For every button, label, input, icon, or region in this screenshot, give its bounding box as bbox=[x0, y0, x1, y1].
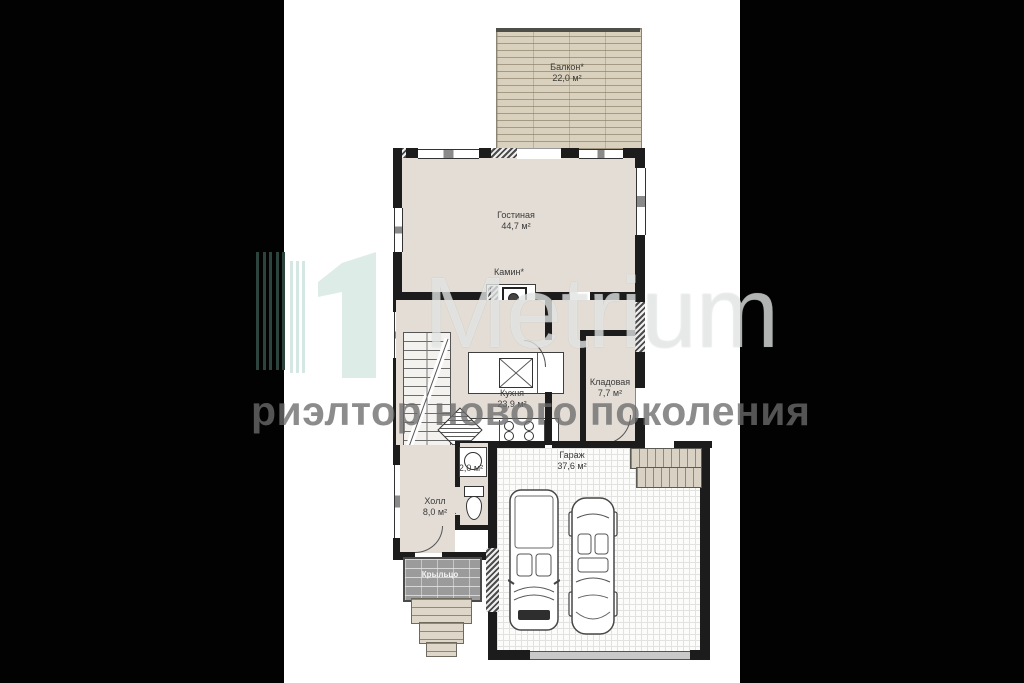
car-top-view bbox=[568, 496, 618, 636]
wc-area-label: 2,0 м² bbox=[459, 463, 483, 474]
porch-name: Крыльцо bbox=[422, 570, 458, 580]
garage-entry-steps bbox=[630, 448, 702, 469]
room-label: Кладовая 7,7 м² bbox=[590, 377, 630, 400]
pantry-name: Кладовая bbox=[590, 377, 630, 388]
stripe-icon bbox=[256, 252, 259, 370]
wall bbox=[635, 352, 645, 388]
balcony bbox=[496, 28, 642, 152]
stripe-icon bbox=[276, 252, 279, 370]
porch-steps bbox=[419, 622, 464, 644]
stripe-icon bbox=[263, 252, 266, 370]
fireplace-label: Камин* bbox=[494, 267, 524, 278]
floorplan-photo: Балкон* 22,0 м² Гостиная 44,7 м² bbox=[284, 0, 740, 683]
wall bbox=[396, 292, 488, 300]
wall bbox=[479, 148, 491, 158]
hall-area: 8,0 м² bbox=[423, 507, 447, 518]
wall bbox=[534, 292, 570, 300]
room-label: Кухня 23,9 м² bbox=[497, 388, 526, 411]
balcony-door-sill bbox=[491, 148, 517, 158]
stripe-icon bbox=[269, 252, 272, 370]
van-top-view bbox=[508, 488, 560, 632]
wall bbox=[580, 330, 586, 445]
stairs bbox=[403, 332, 451, 462]
porch-steps bbox=[411, 598, 472, 624]
wall-hatch bbox=[486, 548, 499, 612]
wall bbox=[623, 148, 635, 158]
kitchen-area: 23,9 м² bbox=[497, 399, 526, 410]
wc-area: 2,0 м² bbox=[459, 463, 483, 474]
stairs-break-line bbox=[404, 333, 450, 461]
wc-toilet bbox=[463, 486, 483, 522]
burner-icon bbox=[524, 431, 534, 441]
wall bbox=[552, 441, 636, 448]
porch-steps bbox=[426, 642, 457, 657]
wall bbox=[488, 650, 530, 660]
wall bbox=[393, 148, 402, 208]
wall bbox=[545, 300, 552, 340]
wall bbox=[455, 525, 488, 530]
room-label: Гараж 37,6 м² bbox=[557, 450, 586, 473]
stove bbox=[499, 420, 545, 441]
door-opening bbox=[570, 292, 590, 300]
wall bbox=[545, 392, 552, 445]
balcony-top-edge bbox=[496, 28, 640, 32]
toilet-bowl-icon bbox=[466, 496, 482, 520]
garage-name: Гараж bbox=[557, 450, 586, 461]
balcony-door-opening bbox=[517, 148, 561, 159]
hall-name: Холл bbox=[423, 496, 447, 507]
garage-area: 37,6 м² bbox=[557, 461, 586, 472]
burner-icon bbox=[504, 421, 514, 431]
balcony-name: Балкон* bbox=[550, 62, 584, 73]
fireplace-name: Камин* bbox=[494, 267, 524, 278]
living-room-name: Гостиная bbox=[497, 210, 535, 221]
room-label: Балкон* 22,0 м² bbox=[550, 62, 584, 85]
window bbox=[394, 208, 403, 252]
page-background: Балкон* 22,0 м² Гостиная 44,7 м² bbox=[0, 0, 1024, 683]
pantry-area: 7,7 м² bbox=[590, 388, 630, 399]
kitchen-name: Кухня bbox=[497, 388, 526, 399]
garage-door bbox=[530, 651, 690, 660]
garage-entry-steps bbox=[636, 467, 702, 488]
wall bbox=[635, 418, 645, 448]
wall-hatch bbox=[635, 302, 645, 352]
balcony-area: 22,0 м² bbox=[550, 73, 584, 84]
window bbox=[636, 168, 646, 235]
room-label: Холл 8,0 м² bbox=[423, 496, 447, 519]
burner-icon bbox=[504, 431, 514, 441]
door-opening bbox=[635, 388, 646, 418]
burner-icon bbox=[524, 421, 534, 431]
room-label: Гостиная 44,7 м² bbox=[497, 210, 535, 233]
wall bbox=[561, 148, 579, 158]
wall bbox=[690, 650, 710, 660]
porch-label: Крыльцо bbox=[422, 570, 458, 580]
window bbox=[418, 149, 479, 159]
wall bbox=[590, 292, 645, 300]
living-room-area: 44,7 м² bbox=[497, 221, 535, 232]
wall bbox=[635, 148, 645, 168]
wall bbox=[406, 148, 418, 158]
window bbox=[579, 149, 623, 159]
